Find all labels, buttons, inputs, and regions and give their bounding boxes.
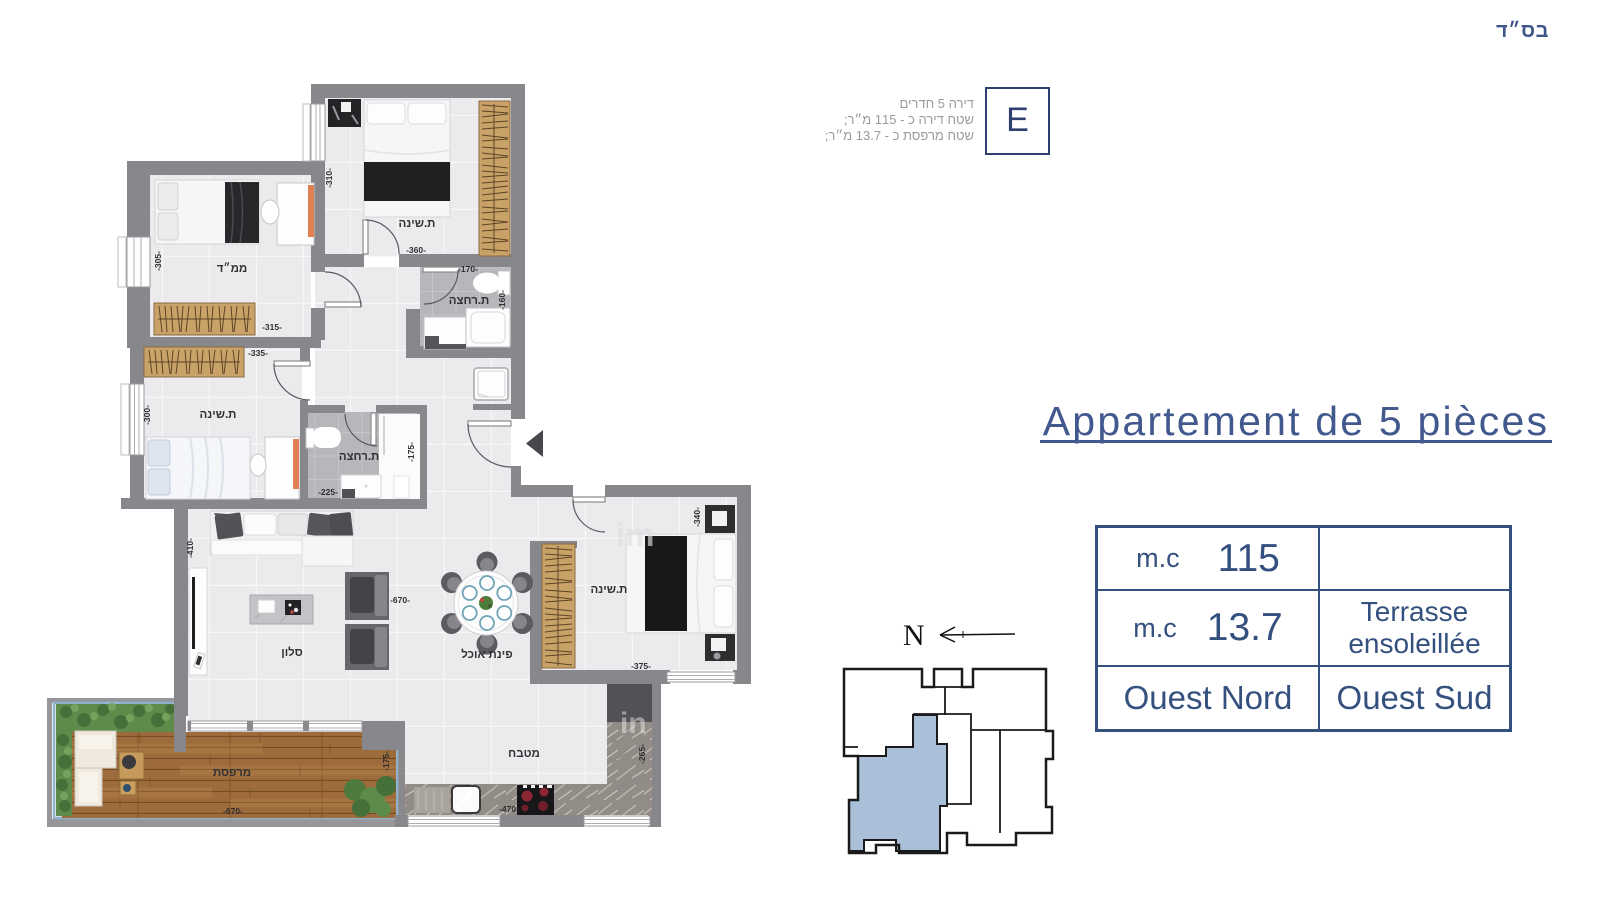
- svg-text:פינת אוכל: פינת אוכל: [461, 648, 512, 661]
- svg-text:-160-: -160-: [497, 290, 507, 310]
- svg-text:ת.רחצה: ת.רחצה: [449, 295, 490, 307]
- svg-text:מרפסת: מרפסת: [213, 767, 251, 779]
- svg-text:ת.שינה: ת.שינה: [200, 409, 237, 421]
- svg-text:-375-: -375-: [631, 661, 651, 671]
- svg-text:ת.שינה: ת.שינה: [399, 218, 436, 230]
- svg-text:-470-: -470-: [499, 804, 519, 814]
- svg-text:-360-: -360-: [406, 245, 426, 255]
- svg-text:-265-: -265-: [637, 744, 647, 764]
- svg-text:im: im: [616, 516, 655, 553]
- svg-text:-225-: -225-: [318, 487, 338, 497]
- svg-text:N: N: [903, 619, 925, 652]
- svg-text:מטבח: מטבח: [508, 748, 540, 760]
- svg-text:ת.שינה: ת.שינה: [591, 584, 628, 596]
- svg-text:-175-: -175-: [381, 751, 391, 771]
- svg-text:-670-: -670-: [223, 806, 243, 816]
- svg-text:-305-: -305-: [153, 251, 163, 271]
- svg-text:-335-: -335-: [248, 348, 268, 358]
- svg-text:in: in: [620, 707, 647, 740]
- svg-text:-315-: -315-: [262, 322, 282, 332]
- svg-text:ת.רחצה: ת.רחצה: [339, 451, 380, 463]
- svg-text:סלון: סלון: [281, 646, 303, 659]
- svg-text:-310-: -310-: [324, 168, 334, 188]
- svg-text:-340-: -340-: [692, 507, 702, 527]
- svg-text:-300-: -300-: [142, 405, 152, 425]
- svg-text:ממ״ד: ממ״ד: [217, 262, 248, 275]
- svg-text:-175-: -175-: [406, 442, 416, 462]
- svg-text:-670-: -670-: [390, 595, 410, 605]
- svg-text:-170-: -170-: [458, 264, 478, 274]
- svg-text:-410-: -410-: [185, 538, 195, 558]
